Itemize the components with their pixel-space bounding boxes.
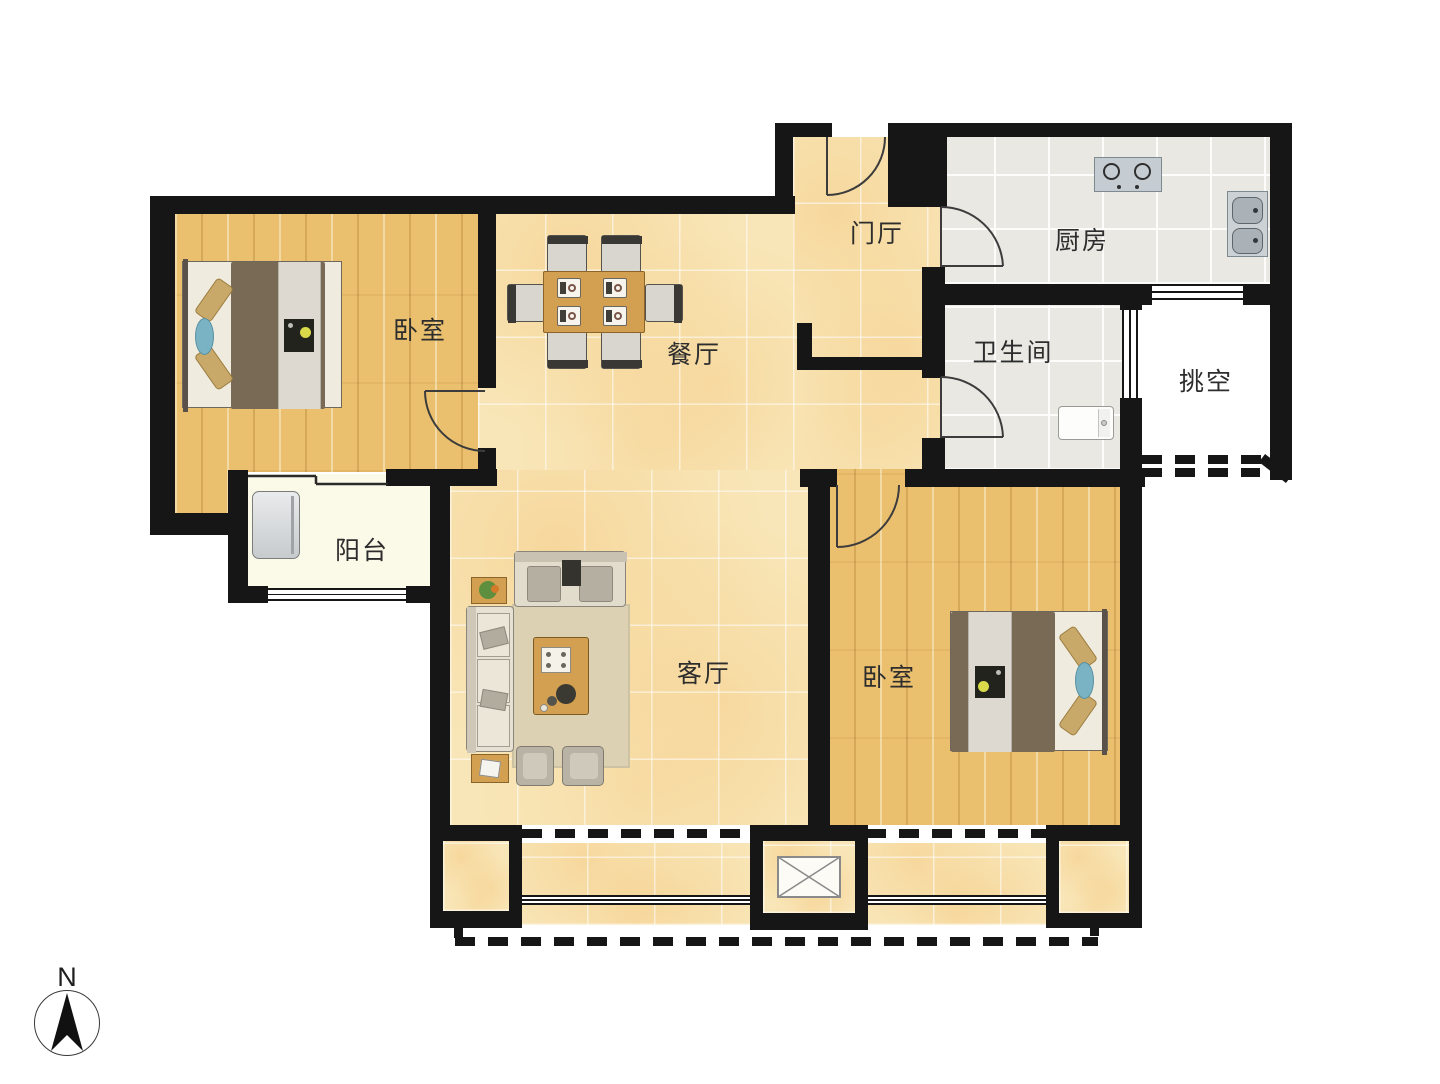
floor-bedroom-nw-nook <box>175 460 235 515</box>
bed-pillow <box>1058 691 1098 737</box>
wall-balcony-west-block <box>228 586 268 603</box>
wall-window-block-ne <box>1243 284 1292 305</box>
stove <box>1094 157 1162 192</box>
dashed-void-bottom-2 <box>1142 468 1260 477</box>
washing-machine <box>252 491 300 559</box>
wall-top <box>150 196 795 214</box>
wall-bath-right-bottom <box>1120 398 1142 462</box>
wall-bedroom-nw-bottom <box>386 469 497 486</box>
dining-chair <box>645 284 683 322</box>
burner <box>1103 163 1120 180</box>
window-bathroom-void <box>1122 308 1138 400</box>
floor-bathroom <box>940 300 1122 470</box>
side-table-book <box>471 754 509 783</box>
wall-bath-right-top <box>1120 284 1142 310</box>
room-label-kitchen: 厨房 <box>1055 221 1109 257</box>
wall-kitchen-sw-block <box>888 123 947 207</box>
bed-tray-dot <box>288 323 293 328</box>
floor-balcony-south-right <box>866 843 1046 925</box>
compass: N <box>28 962 108 1072</box>
stool <box>562 746 604 786</box>
dining-chair <box>507 284 545 322</box>
room-label-bathroom: 卫生间 <box>972 333 1053 369</box>
wall-ew-right <box>905 469 1145 487</box>
bed-tray <box>284 319 314 352</box>
kitchen-sink <box>1227 191 1268 257</box>
bed-round-pillow <box>1075 662 1094 699</box>
dining-chair <box>601 331 641 369</box>
stool <box>516 746 554 786</box>
dining-chair <box>547 331 587 369</box>
room-label-bedroom-se: 卧室 <box>862 658 916 694</box>
bed-nw <box>182 261 342 408</box>
window-balcony-south-left <box>520 895 751 905</box>
floor-plan: 卧室 餐厅 门厅 厨房 卫生间 挑空 阳台 客厅 卧室 N <box>0 0 1440 1084</box>
bed-pillow <box>194 277 234 323</box>
compass-needle-icon <box>28 962 108 1072</box>
dashed-void-bottom <box>1142 455 1268 464</box>
room-label-living: 客厅 <box>677 654 731 690</box>
dining-chair <box>601 235 641 273</box>
pillar-south-middle-inner <box>763 841 855 913</box>
wall-kitchen-right <box>1270 123 1292 308</box>
wall-entry-top <box>775 123 832 137</box>
burner <box>1134 163 1151 180</box>
dashed-opening-bedroom-se <box>866 829 1046 838</box>
window-balcony-south-right <box>866 895 1046 905</box>
bed-headboard <box>1102 609 1107 755</box>
wall-top-right <box>888 123 1292 137</box>
wall-right-south <box>1120 462 1142 842</box>
wall-bedroom-se-left <box>808 487 830 825</box>
coffee-table <box>533 637 589 715</box>
wall-void-right <box>1270 308 1292 480</box>
sofa-top <box>514 551 626 607</box>
pillar-south-left-inner <box>443 841 509 911</box>
side-table-plant <box>471 577 507 604</box>
bed-pillow <box>1058 625 1098 671</box>
room-label-bedroom-nw: 卧室 <box>393 311 447 347</box>
wall-stub-horiz <box>797 357 944 370</box>
room-label-void: 挑空 <box>1179 362 1233 398</box>
pillar-south-right-inner <box>1059 841 1129 913</box>
dining-table <box>543 271 645 333</box>
floor-balcony-south-left <box>520 843 750 925</box>
floor-dining <box>478 210 806 472</box>
toilet <box>1058 406 1114 440</box>
window-balcony-west <box>266 588 407 601</box>
bed-headboard <box>183 259 188 412</box>
bed-round-pillow <box>195 318 214 355</box>
room-label-foyer: 门厅 <box>850 214 904 250</box>
bed-tray-lamp <box>978 681 989 692</box>
bed-tray-lamp <box>300 327 311 338</box>
bed-tray-dot <box>996 670 1001 675</box>
dashed-south-boundary <box>455 937 1098 946</box>
room-label-dining: 餐厅 <box>667 335 721 371</box>
wall-left <box>150 196 175 535</box>
room-label-balcony-west: 阳台 <box>335 531 389 567</box>
dining-chair <box>547 235 587 273</box>
sofa-left <box>466 606 514 752</box>
bed-se <box>950 611 1108 751</box>
wall-ew-left-of-door <box>800 469 837 487</box>
dashed-opening-living <box>522 829 750 838</box>
wall-living-left <box>430 470 450 842</box>
teapot <box>556 684 576 704</box>
window-kitchen-void <box>1150 284 1244 300</box>
wall-balcony-west-left <box>228 470 248 603</box>
wall-bedroom-nw-right <box>478 196 496 388</box>
bed-tray <box>975 666 1005 698</box>
